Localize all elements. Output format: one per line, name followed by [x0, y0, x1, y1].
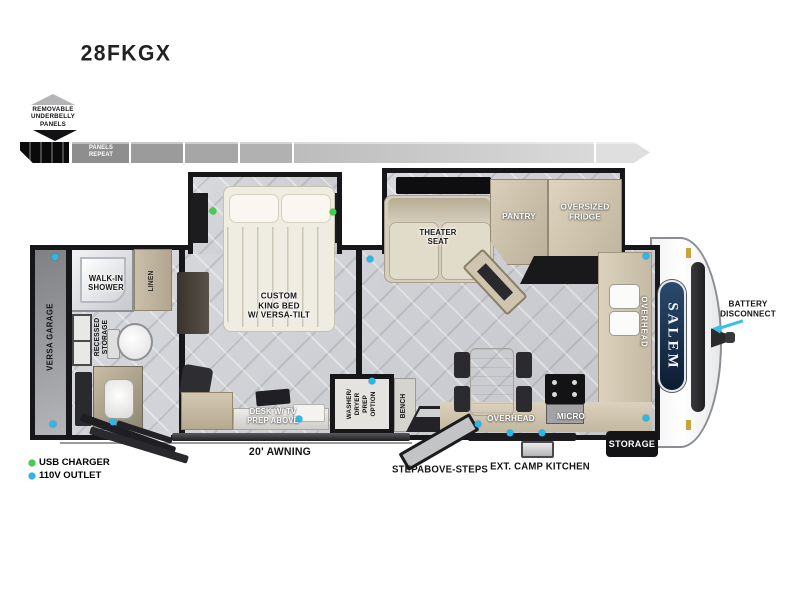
versa-garage-label: VERSA GARAGE	[47, 303, 56, 371]
storage-compartment: STORAGE	[606, 431, 658, 457]
slideout-tv-strip	[396, 177, 491, 194]
linen-label: LINEN	[148, 270, 156, 291]
bath-sink	[104, 379, 134, 419]
panel-segment	[240, 142, 292, 163]
panels-repeat-label: PANELS REPEAT	[89, 145, 113, 159]
dinette-table	[470, 348, 514, 416]
camp-kitchen-unit	[521, 441, 554, 458]
dinette-chair	[454, 386, 470, 412]
pantry	[490, 179, 548, 265]
panel-segment	[294, 142, 594, 163]
awning-line	[60, 442, 412, 444]
awning-label: 20' AWNING	[249, 446, 311, 458]
oversized-fridge-label: OVERSIZED FRIDGE	[561, 202, 610, 221]
battery-arrow-shaft	[719, 319, 744, 329]
bedroom-living-wall	[356, 250, 362, 376]
overhead-front-label: OVERHEAD	[487, 414, 535, 424]
front-window-strip	[691, 262, 705, 412]
110v-outlet-marker	[475, 421, 482, 428]
usb-charger-marker	[210, 208, 217, 215]
pillow	[281, 194, 331, 223]
legend-outlet-dot	[29, 473, 36, 480]
kitchen-sink	[609, 284, 640, 309]
washer-dryer-label: WASHER/ DRYER PREP OPTION	[346, 389, 379, 419]
kitchen-sink	[609, 311, 640, 336]
page-title: 28FKGX	[81, 42, 172, 67]
floorplan-page: { "title": "28FKGX", "underbelly": { "la…	[0, 0, 800, 600]
dinette-chair	[516, 352, 532, 378]
pantry-label: PANTRY	[502, 212, 536, 222]
bench-label: BENCH	[400, 394, 408, 419]
wardrobe	[177, 272, 209, 334]
camp-kitchen-rail	[468, 433, 576, 441]
desk-label: DESK W/ TV PREP ABOVE	[247, 408, 299, 426]
panel-dark-block	[20, 142, 69, 163]
hitch-knob	[725, 332, 735, 343]
110v-outlet-marker	[643, 415, 650, 422]
110v-outlet-marker	[369, 378, 376, 385]
dinette-chair	[454, 352, 470, 378]
burner	[572, 380, 577, 385]
underbelly-up-arrow-icon	[31, 94, 75, 105]
110v-outlet-marker	[50, 421, 57, 428]
legend-outlet-label: 110V OUTLET	[39, 470, 101, 481]
burner	[552, 392, 557, 397]
battery-disconnect-label: BATTERY DISCONNECT	[720, 299, 776, 318]
110v-outlet-marker	[110, 419, 117, 426]
burner	[552, 380, 557, 385]
panel-arrow-icon	[596, 142, 650, 163]
110v-outlet-marker	[643, 253, 650, 260]
toilet	[117, 323, 153, 361]
pillow	[229, 194, 279, 223]
110v-outlet-marker	[52, 254, 59, 261]
recessed-storage-label: RECESSED STORAGE	[94, 318, 110, 357]
panel-segment	[185, 142, 238, 163]
theater-seat-label: THEATER SEAT	[419, 229, 456, 247]
110v-outlet-marker	[367, 256, 374, 263]
micro-label: MICRO	[557, 412, 585, 422]
desk	[181, 392, 233, 430]
marker-light	[686, 420, 691, 430]
storage-label: STORAGE	[609, 439, 655, 449]
dinette-chair	[516, 386, 532, 412]
king-bed-label: CUSTOM KING BED W/ VERSA-TILT	[248, 292, 310, 321]
legend-usb-label: USB CHARGER	[39, 457, 110, 468]
legend-usb-dot	[29, 460, 36, 467]
110v-outlet-marker	[539, 430, 546, 437]
stepabove-steps-label: STEPABOVE-STEPS	[392, 464, 488, 475]
desk-monitor	[255, 389, 290, 407]
110v-outlet-marker	[296, 416, 303, 423]
walk-in-shower-label: WALK-IN SHOWER	[88, 275, 124, 293]
underbelly-down-arrow-icon	[33, 130, 77, 141]
usb-charger-marker	[330, 209, 337, 216]
panel-segment: PANELS REPEAT	[72, 142, 129, 163]
camp-kitchen-label: EXT. CAMP KITCHEN	[490, 461, 590, 472]
salem-logo-text: SALEM	[664, 302, 681, 370]
marker-light	[686, 248, 691, 258]
underbelly-panels-bar: PANELS REPEAT	[0, 142, 700, 163]
bedroom-window-left	[191, 193, 208, 243]
burner	[572, 392, 577, 397]
cabinet-divider	[74, 340, 90, 342]
underbelly-label: REMOVABLE UNDERBELLY PANELS	[31, 106, 75, 128]
salem-logo: SALEM	[658, 280, 686, 392]
panel-segment	[131, 142, 183, 163]
awning-bar	[172, 433, 410, 441]
recessed-storage-cabinet	[72, 314, 92, 366]
overhead-galley-label: OVERHEAD	[639, 296, 648, 347]
theater-backrest	[388, 198, 490, 224]
110v-outlet-marker	[507, 430, 514, 437]
range-cooktop	[545, 374, 585, 404]
